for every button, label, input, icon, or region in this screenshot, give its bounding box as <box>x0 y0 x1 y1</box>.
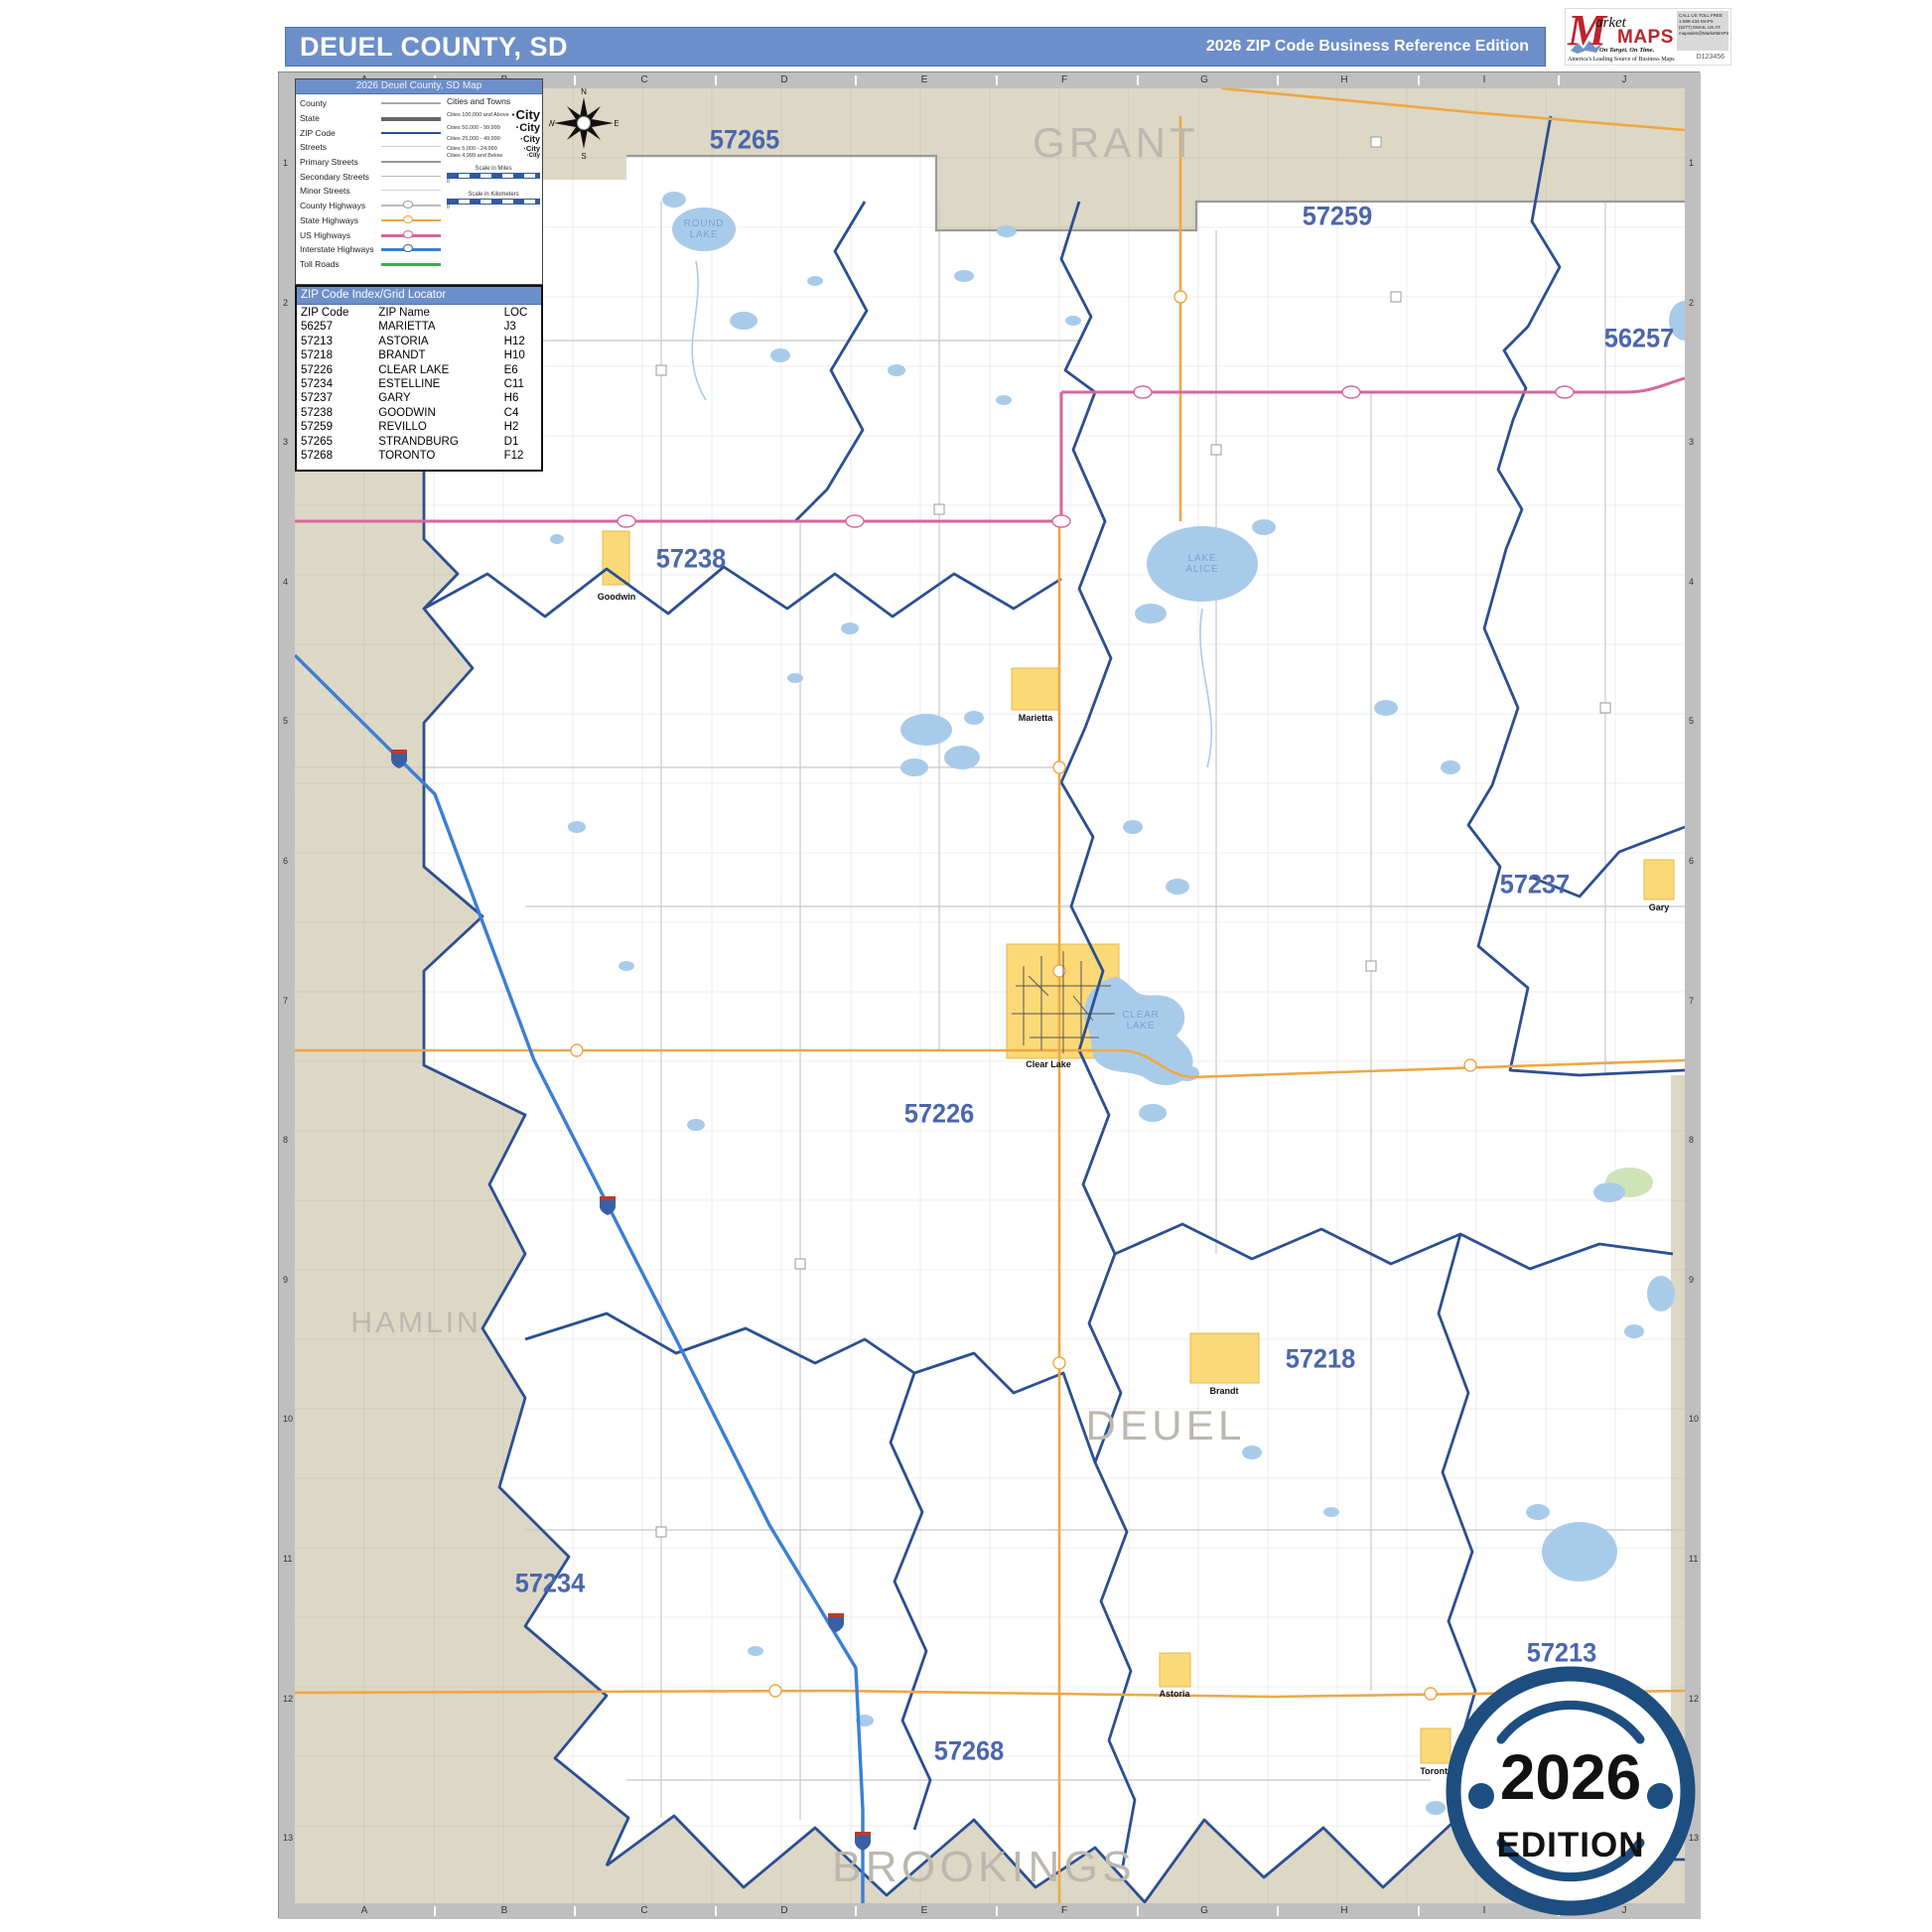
grid-letter: D <box>780 1905 787 1916</box>
legend-item: Streets <box>300 140 445 155</box>
grid-number: 10 <box>283 1414 293 1424</box>
edition-subtitle: 2026 ZIP Code Business Reference Edition <box>1206 38 1545 56</box>
scale-miles: Scale in Miles 0 <box>447 166 540 185</box>
zip-index-column-header: LOC <box>500 306 541 320</box>
marketmaps-logo: M arket MAPS On Target. On Time. America… <box>1565 8 1731 66</box>
badge-year: 2026 <box>1500 1741 1641 1813</box>
grid-letter: G <box>1200 74 1208 85</box>
grid-number: 5 <box>283 716 288 726</box>
grid-letter: E <box>921 74 928 85</box>
legend-city-classes: Cities 100,000 and Above·CityCities 50,0… <box>447 107 540 159</box>
zip-index-column-header: ZIP Name <box>374 306 499 320</box>
grid-number: 4 <box>283 577 288 587</box>
logo-contact-info: CALL US TOLL FREE 1-888-434-MAPS (6277) … <box>1677 11 1728 51</box>
map-poster-page: DEUEL COUNTY, SD 2026 ZIP Code Business … <box>0 0 1932 1932</box>
zip-index-row: 57234ESTELLINEC11 <box>297 377 541 391</box>
zip-index-row: 57268TORONTOF12 <box>297 449 541 463</box>
svg-text:W: W <box>549 119 555 128</box>
map-scribble-icon <box>1570 39 1603 55</box>
legend-item: Primary Streets <box>300 155 445 170</box>
city-class-row: Cities 4,999 and Below·City <box>447 153 540 159</box>
compass-rose-icon: N E S W <box>549 84 619 162</box>
grid-number: 2 <box>283 298 288 308</box>
city-class-row: Cities 25,000 - 49,999·City <box>447 134 540 144</box>
grid-letter: C <box>640 74 647 85</box>
zip-index-row: 57237GARYH6 <box>297 391 541 405</box>
grid-number: 12 <box>283 1694 293 1704</box>
scale-kilometers: Scale in Kilometers 0 <box>447 192 540 210</box>
logo-product-code: D123456 <box>1697 54 1725 61</box>
grid-number: 1 <box>1689 158 1694 168</box>
legend-item: State <box>300 111 445 126</box>
grid-number: 11 <box>283 1554 292 1564</box>
map-frame-left: 12345678910111213 <box>279 72 295 1919</box>
grid-letter: G <box>1200 1905 1208 1916</box>
zip-index-table: ZIP CodeZIP NameLOC 56257MARIETTAJ357213… <box>297 306 541 463</box>
grid-letter: F <box>1061 1905 1067 1916</box>
page-title: DEUEL COUNTY, SD <box>286 32 568 63</box>
legend-item: Secondary Streets <box>300 169 445 184</box>
grid-number: 3 <box>1689 437 1694 447</box>
zip-index-row: 57238GOODWINC4 <box>297 406 541 420</box>
grid-number: 1 <box>283 158 288 168</box>
logo-maps-text: MAPS <box>1617 27 1674 49</box>
grid-number: 8 <box>1689 1135 1694 1145</box>
grid-number: 8 <box>283 1135 288 1145</box>
grid-number: 3 <box>283 437 288 447</box>
grid-letter: D <box>780 74 787 85</box>
legend-line-items: CountyStateZIP CodeStreetsPrimary Street… <box>300 96 445 271</box>
grid-number: 9 <box>1689 1275 1694 1285</box>
legend-item: Interstate Highways <box>300 242 445 257</box>
svg-text:S: S <box>581 152 586 161</box>
grid-letter: A <box>361 1905 368 1916</box>
grid-number: 5 <box>1689 716 1694 726</box>
grid-letter: J <box>1622 74 1627 85</box>
grid-number: 11 <box>1689 1554 1698 1564</box>
zip-index-row: 57226CLEAR LAKEE6 <box>297 363 541 377</box>
grid-letter: H <box>1340 1905 1347 1916</box>
grid-number: 2 <box>1689 298 1694 308</box>
grid-letter: F <box>1061 74 1067 85</box>
city-class-row: Cities 100,000 and Above·City <box>447 107 540 122</box>
legend-item: State Highways <box>300 213 445 228</box>
grid-number: 7 <box>283 996 288 1006</box>
grid-number: 7 <box>1689 996 1694 1006</box>
legend-item: Minor Streets <box>300 184 445 199</box>
legend-item: ZIP Code <box>300 125 445 140</box>
legend-item: County Highways <box>300 199 445 213</box>
map-legend: 2026 Deuel County, SD Map CountyStateZIP… <box>295 78 543 285</box>
legend-item: Toll Roads <box>300 257 445 272</box>
badge-edition-text: EDITION <box>1497 1826 1645 1864</box>
legend-title: 2026 Deuel County, SD Map <box>296 79 542 94</box>
zip-index-row: 57213ASTORIAH12 <box>297 335 541 348</box>
zip-index-row: 57265STRANDBURGD1 <box>297 435 541 449</box>
legend-cities-header: Cities and Towns <box>447 96 540 106</box>
map-frame-right: 12345678910111213 <box>1685 72 1701 1919</box>
county-map: GRANTHAMLINDEUELBROOKINGS 57265572595625… <box>278 71 1700 1918</box>
grid-letter: I <box>1483 74 1486 85</box>
svg-text:E: E <box>614 119 619 128</box>
grid-number: 10 <box>1689 1414 1699 1424</box>
city-class-row: Cities 50,000 - 99,999·City <box>447 122 540 134</box>
header-bar: DEUEL COUNTY, SD 2026 ZIP Code Business … <box>285 27 1546 67</box>
zip-index-row: 57218BRANDTH10 <box>297 348 541 362</box>
grid-letter: E <box>921 1905 928 1916</box>
city-class-row: Cities 5,000 - 24,999·City <box>447 144 540 153</box>
zip-index-column-header: ZIP Code <box>297 306 374 320</box>
legend-item: US Highways <box>300 227 445 242</box>
svg-text:N: N <box>581 87 587 96</box>
zip-index-row: 57259REVILLOH2 <box>297 420 541 434</box>
zip-index-row: 56257MARIETTAJ3 <box>297 320 541 334</box>
grid-number: 6 <box>1689 856 1694 866</box>
grid-number: 6 <box>283 856 288 866</box>
grid-letter: B <box>501 1905 508 1916</box>
zip-index-title: ZIP Code Index/Grid Locator <box>297 287 541 305</box>
edition-badge: 2026 EDITION <box>1442 1662 1700 1920</box>
logo-subtitle: America's Leading Source of Business Map… <box>1568 57 1677 63</box>
legend-item: County <box>300 96 445 111</box>
grid-number: 4 <box>1689 577 1694 587</box>
grid-number: 9 <box>283 1275 288 1285</box>
logo-tagline: On Target. On Time. <box>1599 47 1654 54</box>
zip-code-index: ZIP Code Index/Grid Locator ZIP CodeZIP … <box>295 285 543 472</box>
grid-letter: C <box>640 1905 647 1916</box>
grid-letter: H <box>1340 74 1347 85</box>
grid-number: 13 <box>283 1833 293 1843</box>
